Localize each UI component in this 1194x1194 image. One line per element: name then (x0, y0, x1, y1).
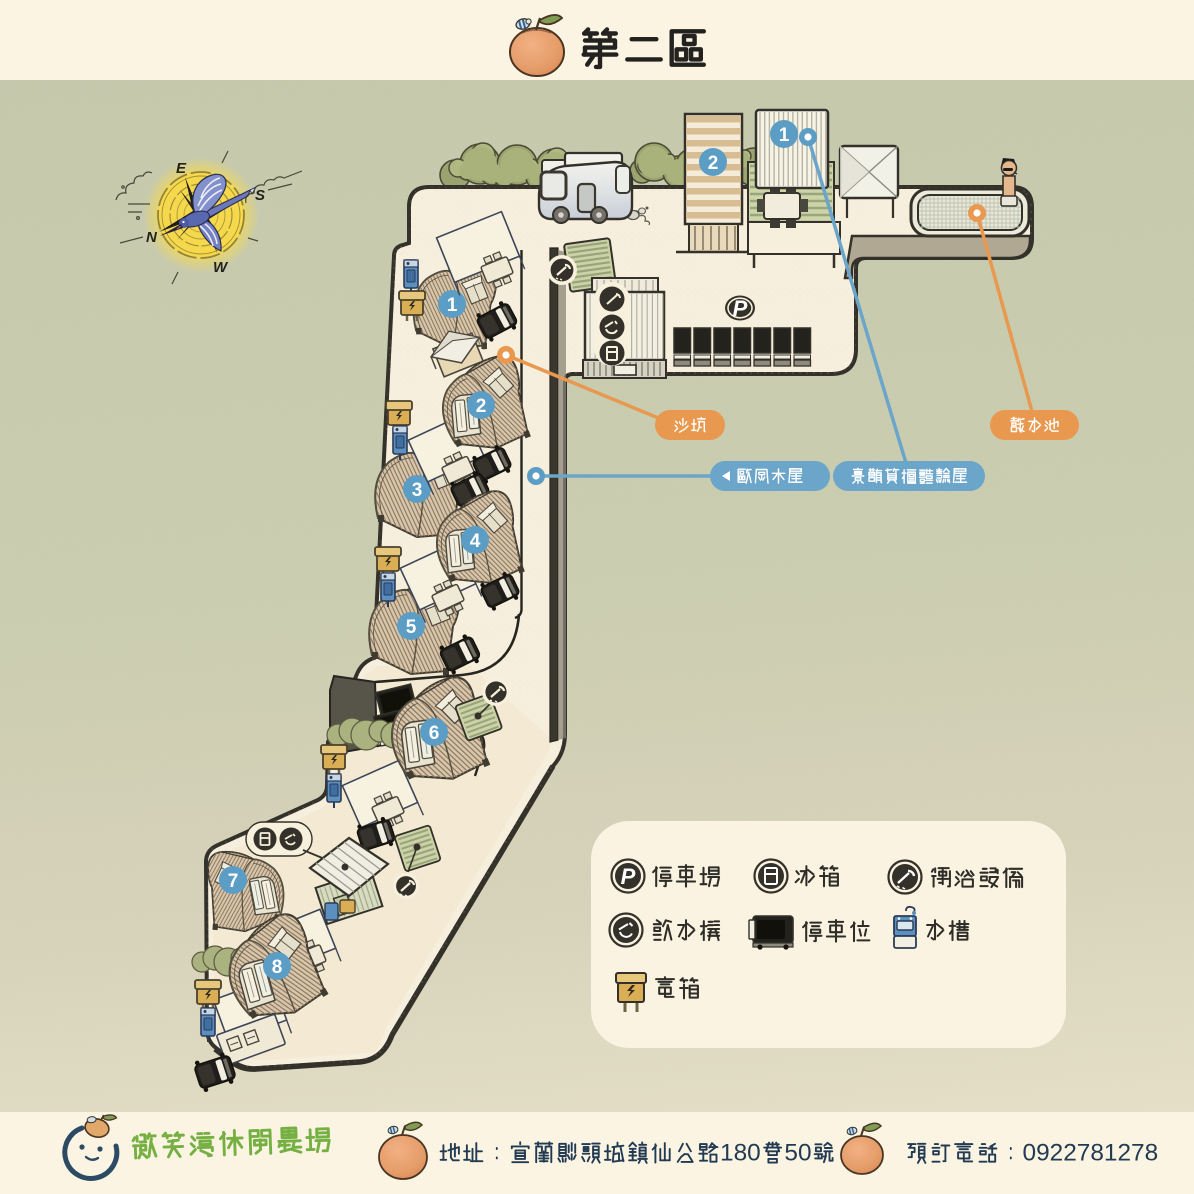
svg-text:S: S (255, 187, 265, 204)
svg-text:E: E (176, 160, 187, 177)
svg-text:5: 5 (406, 617, 417, 638)
svg-text:N: N (146, 229, 158, 246)
svg-text:2: 2 (476, 396, 487, 417)
svg-text:P: P (733, 296, 748, 321)
svg-text:0922781278: 0922781278 (1023, 1139, 1159, 1166)
svg-text:W: W (213, 259, 229, 276)
svg-text:50: 50 (784, 1139, 811, 1166)
svg-text:180: 180 (720, 1139, 761, 1166)
svg-text:8: 8 (272, 957, 283, 978)
svg-text:3: 3 (412, 480, 423, 501)
svg-text:7: 7 (228, 871, 239, 892)
svg-text:2: 2 (708, 153, 719, 174)
svg-text:P: P (621, 864, 636, 889)
svg-text:1: 1 (447, 295, 458, 316)
svg-text:4: 4 (470, 531, 481, 552)
svg-text:1: 1 (779, 125, 790, 146)
svg-text:6: 6 (429, 723, 440, 744)
